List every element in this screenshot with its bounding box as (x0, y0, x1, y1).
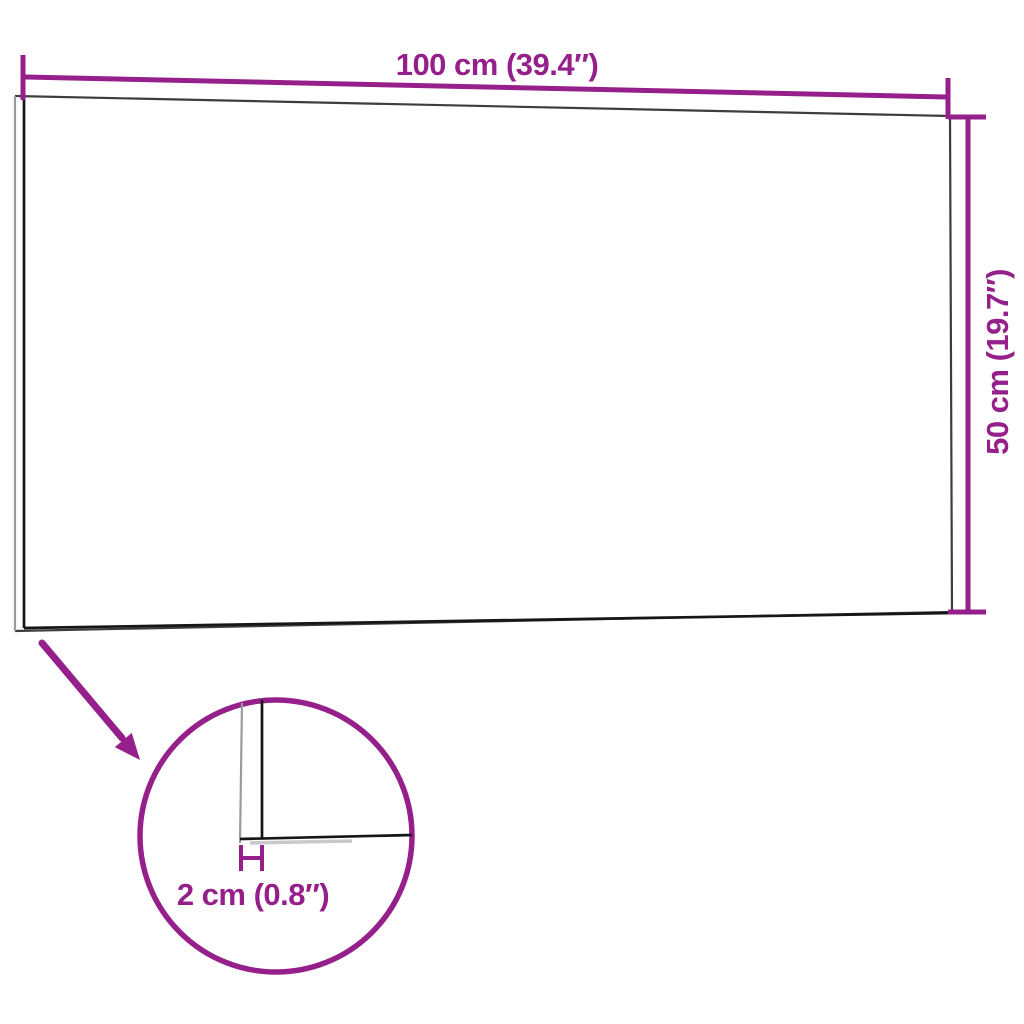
width-dimension: 100 cm (39.4″) (23, 47, 948, 119)
panel-bottom-face-edge (24, 613, 951, 628)
dimension-diagram-canvas: 100 cm (39.4″) 50 cm (19.7″) (0, 0, 1024, 1024)
panel-top-edge (15, 96, 950, 116)
width-dimension-label: 100 cm (39.4″) (396, 47, 599, 82)
thickness-label: 2 cm (0.8″) (177, 877, 329, 912)
height-dimension: 50 cm (19.7″) (948, 117, 1015, 612)
thickness-marker (241, 845, 262, 871)
callout-arrow-shaft (42, 643, 122, 738)
detail-left-outer-edge (240, 703, 242, 843)
panel-right-edge (950, 116, 952, 612)
product-dimension-diagram: 100 cm (39.4″) 50 cm (19.7″) (0, 0, 1024, 1024)
detail-bottom-edge (240, 835, 412, 839)
height-dimension-label: 50 cm (19.7″) (980, 269, 1015, 455)
detail-shadow (250, 841, 352, 843)
panel (15, 96, 952, 631)
thickness-callout: 2 cm (0.8″) (42, 643, 412, 972)
